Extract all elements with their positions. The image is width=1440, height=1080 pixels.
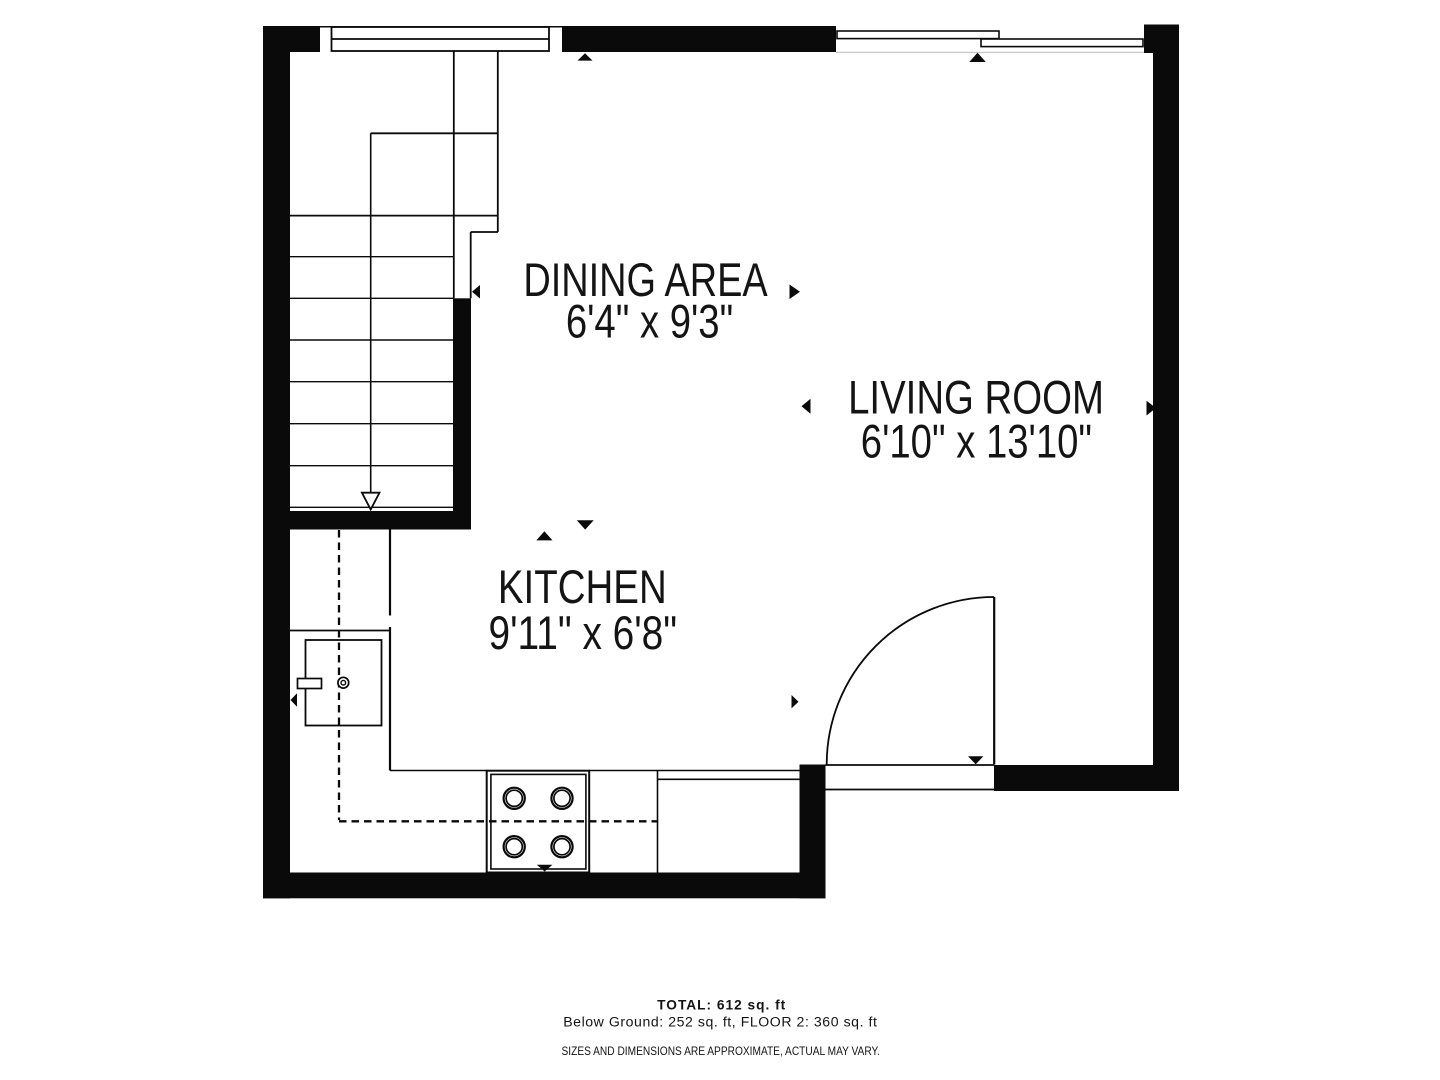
svg-text:Below Ground: 252 sq. ft, FLOO: Below Ground: 252 sq. ft, FLOOR 2: 360 s…	[563, 1014, 877, 1030]
svg-text:TOTAL: 612 sq. ft: TOTAL: 612 sq. ft	[657, 997, 786, 1012]
svg-text:SIZES AND DIMENSIONS ARE APPRO: SIZES AND DIMENSIONS ARE APPROXIMATE, AC…	[562, 1045, 880, 1058]
svg-text:KITCHEN: KITCHEN	[498, 561, 667, 614]
svg-text:6'10" x 13'10": 6'10" x 13'10"	[861, 416, 1092, 469]
svg-text:9'11" x 6'8": 9'11" x 6'8"	[489, 607, 678, 660]
svg-text:6'4" x 9'3": 6'4" x 9'3"	[566, 295, 733, 348]
